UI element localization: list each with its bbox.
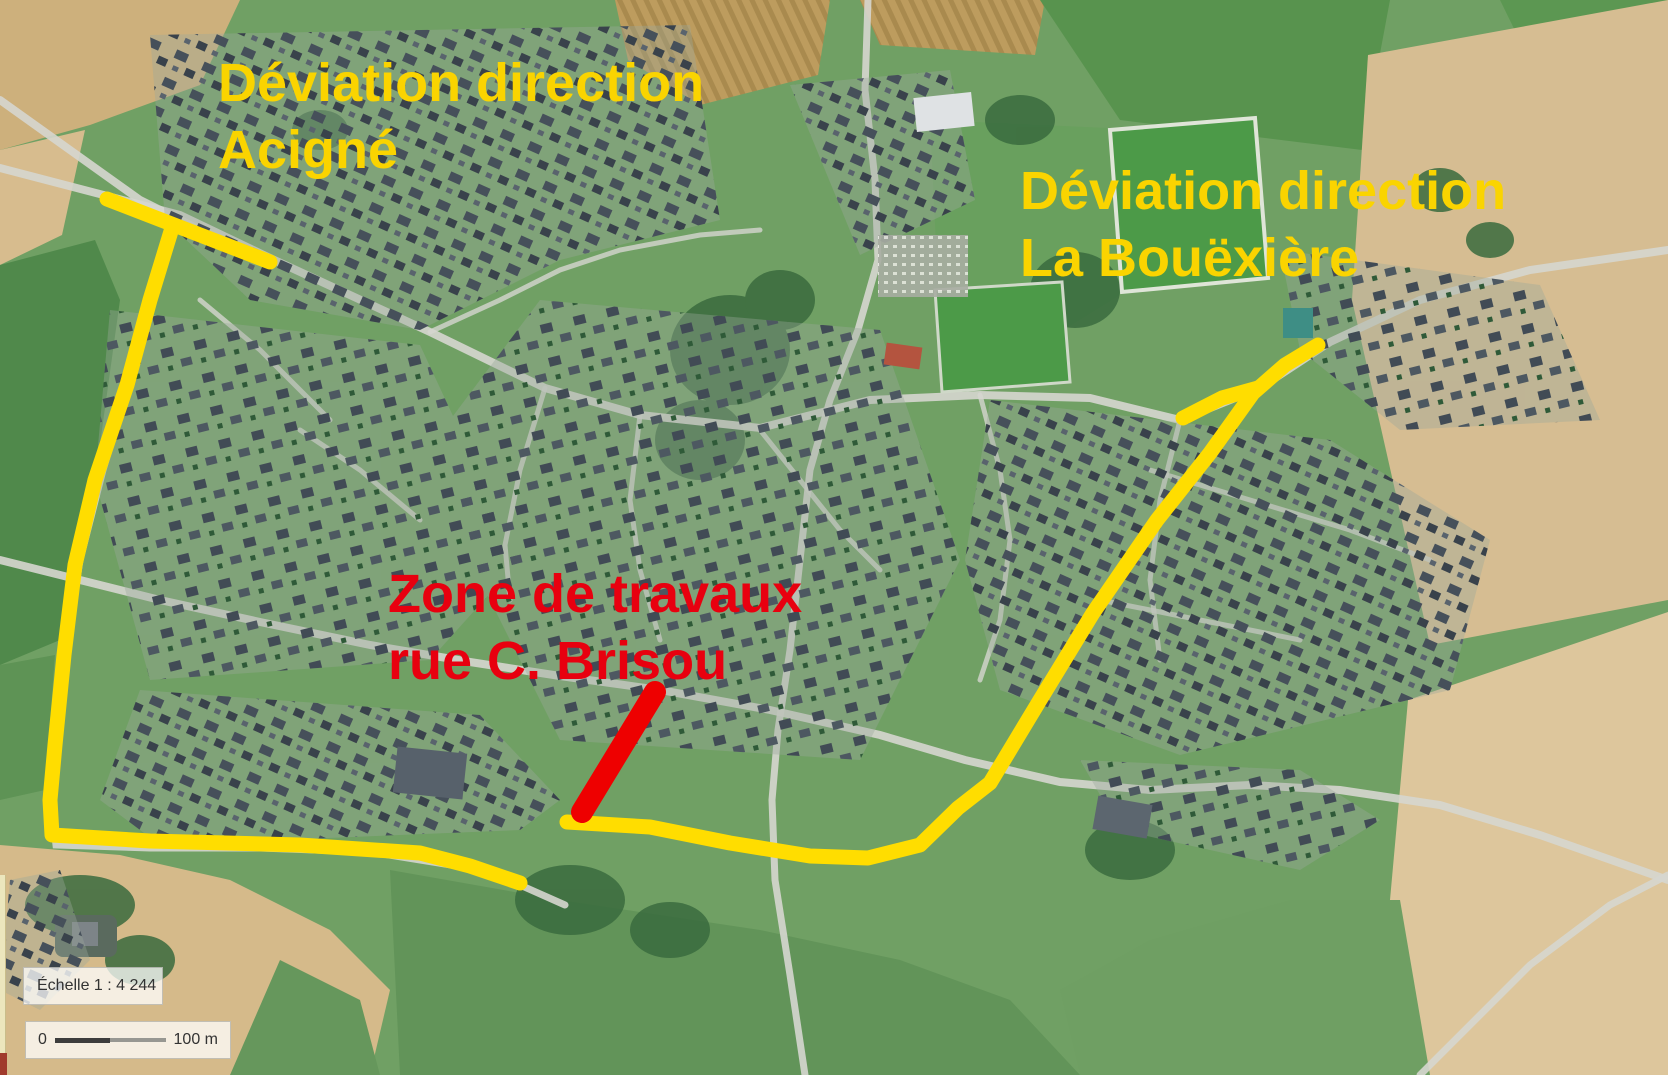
scale-bar [55, 1037, 166, 1043]
label-deviation-bouexiere: Déviation direction La Bouëxière [1020, 158, 1506, 292]
map-viewport: Déviation direction Acigné Déviation dir… [0, 0, 1668, 1075]
scale-bar-end-label: 100 m [174, 1031, 218, 1049]
scale-bar-box: 0 100 m [25, 1021, 231, 1059]
label-deviation-bouexiere-line2: La Bouëxière [1020, 225, 1506, 292]
label-zone-travaux: Zone de travaux rue C. Brisou [388, 561, 802, 695]
label-deviation-bouexiere-line1: Déviation direction [1020, 158, 1506, 225]
cemetery [878, 235, 968, 297]
scale-ratio-box: Échelle 1 : 4 244 [23, 967, 163, 1005]
label-zone-travaux-line1: Zone de travaux [388, 561, 802, 628]
edge-panel-sliver-red [0, 1053, 7, 1075]
label-deviation-acigne-line2: Acigné [218, 117, 704, 184]
scale-bar-light-segment [110, 1038, 165, 1042]
label-zone-travaux-line2: rue C. Brisou [388, 628, 802, 695]
scale-bar-dark-segment [55, 1038, 110, 1043]
scale-bar-start-label: 0 [38, 1031, 47, 1049]
scale-ratio-label: Échelle 1 : 4 244 [37, 977, 156, 995]
edge-panel-sliver [0, 875, 6, 1053]
label-deviation-acigne-line1: Déviation direction [218, 50, 704, 117]
label-deviation-acigne: Déviation direction Acigné [218, 50, 704, 184]
